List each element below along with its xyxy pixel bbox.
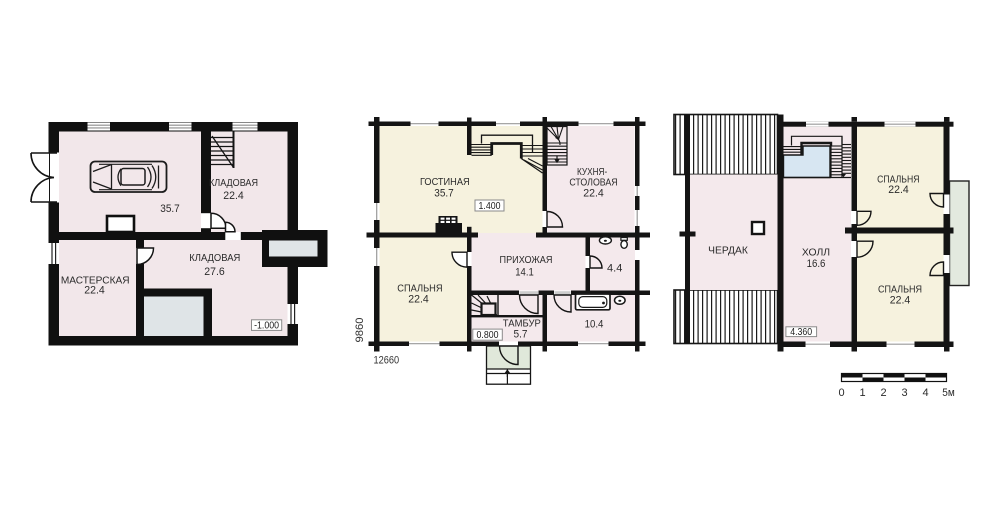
svg-text:9860: 9860 bbox=[354, 318, 366, 343]
svg-text:0: 0 bbox=[838, 387, 844, 399]
svg-text:10.4: 10.4 bbox=[585, 319, 604, 331]
svg-text:14.1: 14.1 bbox=[515, 267, 534, 279]
svg-text:КЛАДОВАЯ: КЛАДОВАЯ bbox=[189, 252, 240, 264]
svg-text:22.4: 22.4 bbox=[84, 285, 105, 297]
svg-text:ГОСТИНАЯ: ГОСТИНАЯ bbox=[420, 176, 470, 188]
svg-text:22.4: 22.4 bbox=[890, 295, 911, 307]
svg-text:ПРИХОЖАЯ: ПРИХОЖАЯ bbox=[500, 254, 553, 266]
svg-text:0.800: 0.800 bbox=[477, 330, 499, 341]
svg-text:4.4: 4.4 bbox=[607, 263, 622, 275]
svg-text:КЛАДОВАЯ: КЛАДОВАЯ bbox=[209, 177, 258, 189]
svg-text:22.4: 22.4 bbox=[888, 184, 909, 196]
svg-text:22.4: 22.4 bbox=[223, 190, 244, 202]
svg-text:ХОЛЛ: ХОЛЛ bbox=[802, 247, 830, 259]
svg-text:1: 1 bbox=[859, 387, 865, 399]
svg-text:2: 2 bbox=[880, 387, 886, 399]
svg-text:12660: 12660 bbox=[374, 355, 400, 367]
svg-text:4: 4 bbox=[922, 387, 928, 399]
svg-text:5м: 5м bbox=[942, 387, 955, 399]
svg-text:-1.000: -1.000 bbox=[254, 320, 279, 331]
svg-text:22.4: 22.4 bbox=[408, 294, 429, 306]
svg-text:5.7: 5.7 bbox=[514, 329, 528, 341]
svg-text:22.4: 22.4 bbox=[583, 188, 604, 200]
svg-text:16.6: 16.6 bbox=[807, 258, 826, 270]
svg-text:35.7: 35.7 bbox=[160, 203, 180, 215]
svg-text:27.6: 27.6 bbox=[204, 266, 225, 278]
svg-text:1.400: 1.400 bbox=[479, 201, 501, 212]
svg-text:3: 3 bbox=[901, 387, 907, 399]
svg-text:35.7: 35.7 bbox=[434, 188, 454, 200]
svg-text:4.360: 4.360 bbox=[790, 327, 812, 338]
svg-text:ЧЕРДАК: ЧЕРДАК bbox=[708, 245, 749, 257]
